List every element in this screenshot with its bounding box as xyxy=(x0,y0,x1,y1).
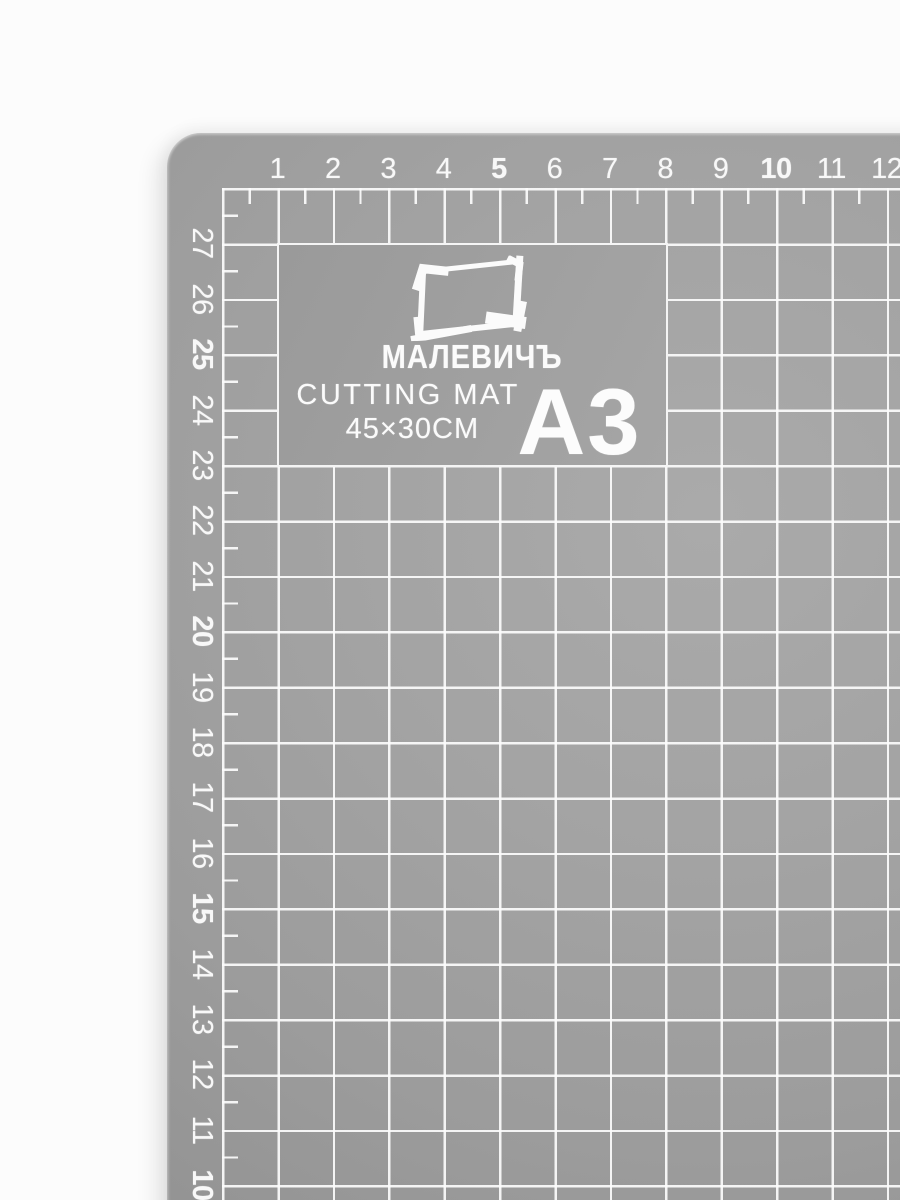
format-badge: A3 xyxy=(517,375,641,469)
ruler-number-left: 16 xyxy=(187,831,217,875)
ruler-number-left: 24 xyxy=(187,388,217,432)
ruler-number-left: 19 xyxy=(187,665,217,709)
photo-stage: 123456789101112 272625242322212019181716… xyxy=(0,0,900,1200)
brand-logo-icon xyxy=(408,255,533,341)
ruler-number-left: 12 xyxy=(187,1052,217,1096)
cutting-mat: 123456789101112 272625242322212019181716… xyxy=(167,133,900,1200)
ruler-number-left: 26 xyxy=(187,277,217,321)
product-title: CUTTING MAT xyxy=(296,379,520,412)
ruler-number-left: 25 xyxy=(187,332,217,376)
ruler-number-left: 17 xyxy=(187,775,217,819)
ruler-number-left: 10 xyxy=(187,1163,217,1200)
ruler-number-left: 14 xyxy=(187,942,217,986)
ruler-number-left: 21 xyxy=(187,554,217,598)
ruler-number-left: 18 xyxy=(187,720,217,764)
product-dimensions: 45×30CM xyxy=(279,413,545,446)
ruler-number-left: 27 xyxy=(187,221,217,265)
ruler-number-left: 20 xyxy=(187,609,217,653)
ruler-number-left: 23 xyxy=(187,443,217,487)
ruler-number-left: 11 xyxy=(187,1108,217,1152)
ruler-number-left: 13 xyxy=(187,997,217,1041)
ruler-number-left: 22 xyxy=(187,498,217,542)
ruler-number-left: 15 xyxy=(187,886,217,930)
logo-panel: МАЛЕВИЧЪ CUTTING MAT 45×30CM A3 xyxy=(277,243,667,467)
